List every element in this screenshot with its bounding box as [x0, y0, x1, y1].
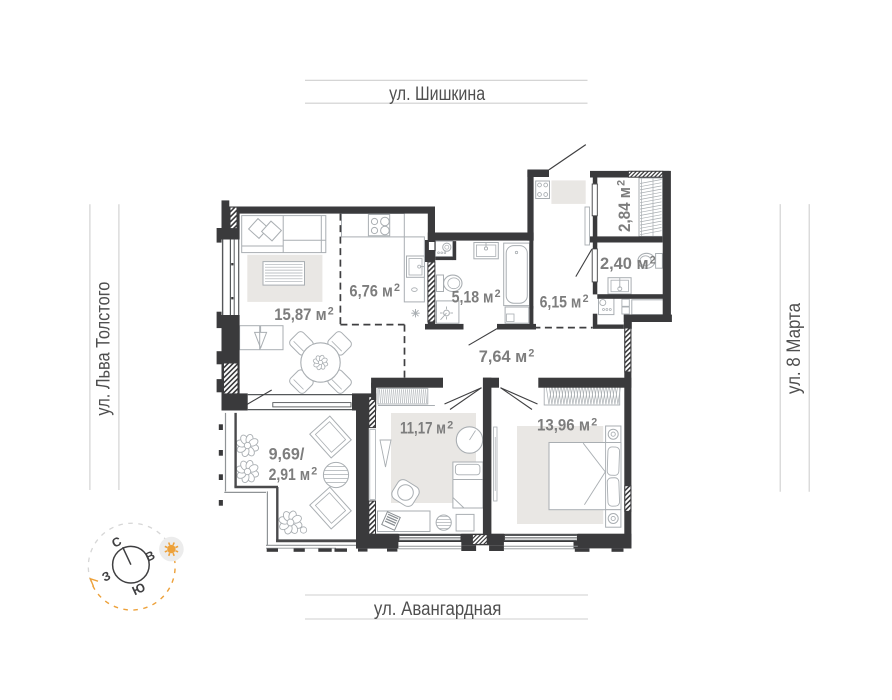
svg-text:ул. Шишкина: ул. Шишкина — [389, 84, 485, 105]
svg-text:6,15 м: 6,15 м — [540, 292, 582, 311]
svg-text:2,40 м: 2,40 м — [600, 254, 649, 273]
svg-text:11,17 м: 11,17 м — [400, 419, 446, 438]
svg-text:2: 2 — [650, 255, 656, 267]
svg-text:2: 2 — [583, 293, 589, 305]
svg-text:15,87 м: 15,87 м — [274, 305, 326, 324]
svg-text:2: 2 — [616, 180, 628, 186]
svg-text:5,18 м: 5,18 м — [452, 287, 494, 306]
svg-text:2: 2 — [311, 465, 317, 477]
svg-text:2,91 м: 2,91 м — [269, 465, 311, 484]
svg-text:ул. Льва Толстого: ул. Льва Толстого — [94, 282, 115, 416]
svg-text:2: 2 — [528, 348, 534, 360]
svg-text:2: 2 — [495, 288, 501, 300]
svg-text:2: 2 — [591, 416, 597, 428]
svg-text:6,76 м: 6,76 м — [349, 281, 393, 300]
svg-text:ул. 8 Марта: ул. 8 Марта — [784, 303, 805, 394]
svg-text:ул. Авангардная: ул. Авангардная — [374, 599, 502, 620]
svg-text:2: 2 — [394, 282, 400, 294]
svg-text:2,84 м: 2,84 м — [615, 187, 634, 232]
svg-text:7,64 м: 7,64 м — [479, 347, 527, 366]
svg-text:13,96 м: 13,96 м — [537, 416, 590, 435]
svg-text:9,69/: 9,69/ — [269, 445, 305, 464]
svg-text:2: 2 — [447, 419, 453, 431]
svg-text:2: 2 — [328, 306, 334, 318]
